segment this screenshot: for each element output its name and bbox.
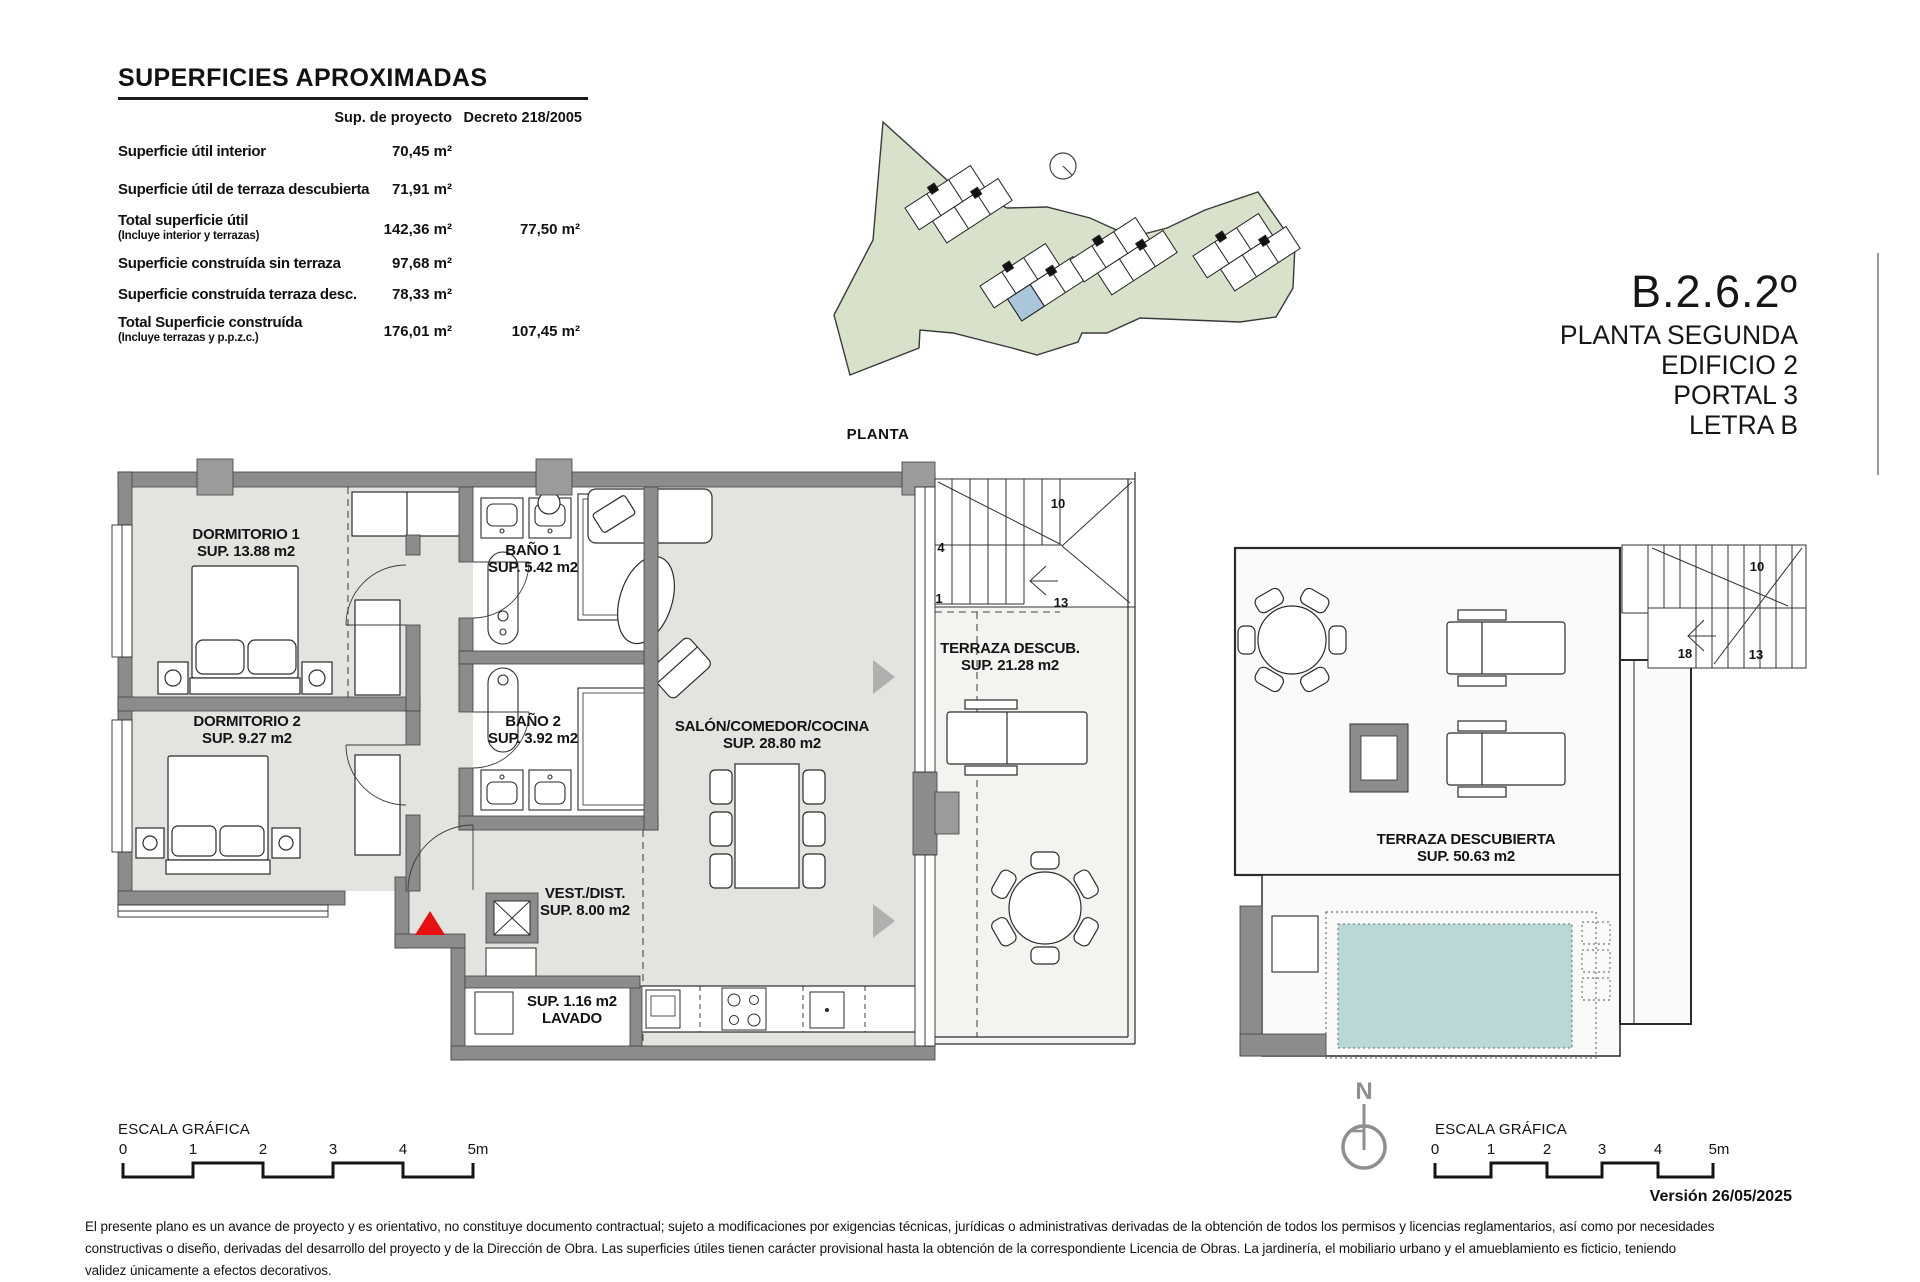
room-label-dormitorio1: DORMITORIO 1SUP. 13.88 m2	[192, 527, 299, 560]
unit-code: B.2.6.2º	[1560, 268, 1798, 316]
sheet-border-line	[1877, 253, 1879, 475]
room-label-vestibulo: VEST./DIST.SUP. 8.00 m2	[540, 886, 630, 919]
stair-number: 1	[935, 591, 942, 606]
stair-number: 4	[937, 540, 944, 555]
column-decreto: Decreto 218/2005	[464, 110, 583, 126]
disclaimer: El presente plano es un avance de proyec…	[85, 1216, 1847, 1282]
stair-number: 10	[1051, 496, 1065, 511]
room-label-dormitorio2: DORMITORIO 2SUP. 9.27 m2	[193, 714, 300, 747]
scale-tick: 3	[1598, 1141, 1606, 1158]
scale-bar-left-label: ESCALA GRÁFICA	[118, 1121, 250, 1138]
column-proyecto: Sup. de proyecto	[334, 110, 452, 126]
scale-tick: 1	[189, 1141, 197, 1158]
dining-table	[710, 764, 825, 888]
scale-tick: 2	[259, 1141, 267, 1158]
unit-floor: PLANTA SEGUNDA	[1560, 320, 1798, 350]
scale-bar-left-drawing	[123, 1163, 473, 1177]
scale-bar-right-drawing	[1435, 1163, 1713, 1177]
scale-tick: 3	[329, 1141, 337, 1158]
shaft	[486, 893, 538, 986]
stair-number: 13	[1749, 647, 1763, 662]
stair-number: 18	[1678, 646, 1692, 661]
solarium-slab	[1235, 548, 1620, 875]
unit-portal: PORTAL 3	[1560, 380, 1798, 410]
areas-table: SUPERFICIES APROXIMADAS Sup. de proyecto…	[118, 64, 588, 344]
scale-tick: 0	[1431, 1141, 1439, 1158]
scale-tick: 5m	[468, 1141, 489, 1158]
room-label-terraza: TERRAZA DESCUB.SUP. 21.28 m2	[940, 641, 1080, 674]
unit-id-block: B.2.6.2º PLANTA SEGUNDA EDIFICIO 2 PORTA…	[1560, 268, 1798, 440]
disclaimer-line: validez únicamente a efectos decorativos…	[85, 1260, 1847, 1282]
pool	[1338, 924, 1572, 1048]
terrace-stairs	[935, 479, 1135, 607]
disclaimer-line: El presente plano es un avance de proyec…	[85, 1216, 1847, 1238]
room-label-bano1: BAÑO 1SUP. 5.42 m2	[488, 543, 578, 576]
stair-number: 10	[1750, 559, 1764, 574]
table-row: Total superficie útil (Incluye interior …	[118, 212, 588, 242]
table-header: Sup. de proyecto Decreto 218/2005	[118, 110, 588, 128]
kitchen-counter	[640, 986, 921, 1032]
table-row: Superficie construída terraza desc. 78,3…	[118, 286, 588, 304]
scale-tick: 5m	[1709, 1141, 1730, 1158]
version-text: Versión 26/05/2025	[1650, 1188, 1792, 1206]
site-plan-drawing	[834, 122, 1300, 375]
room-label-salon: SALÓN/COMEDOR/COCINASUP. 28.80 m2	[675, 719, 869, 752]
scale-bar-right-label: ESCALA GRÁFICA	[1435, 1121, 1567, 1138]
room-label-bano2: BAÑO 2SUP. 3.92 m2	[488, 714, 578, 747]
table-row: Superficie útil interior 70,45 m²	[118, 143, 588, 161]
solarium-stairs	[1622, 545, 1806, 668]
floor-plan-sheet: { "colors": { "site_green": "#d8e1ca", "…	[0, 0, 1920, 1280]
scale-tick: 0	[119, 1141, 127, 1158]
north-label: N	[1355, 1078, 1372, 1106]
wardrobe-dorm1	[355, 600, 400, 695]
scale-tick: 1	[1487, 1141, 1495, 1158]
table-row: Total Superficie construída (Incluye ter…	[118, 314, 588, 344]
scale-tick: 4	[1654, 1141, 1662, 1158]
title-underline	[118, 97, 588, 100]
table-row: Superficie construída sin terraza 97,68 …	[118, 255, 588, 273]
stair-number: 13	[1054, 595, 1068, 610]
unit-letter: LETRA B	[1560, 410, 1798, 440]
north-arrow-icon	[1343, 1104, 1385, 1168]
solarium-wing	[1620, 660, 1691, 1024]
table-title: SUPERFICIES APROXIMADAS	[118, 64, 588, 93]
solarium-lounger	[1447, 721, 1565, 797]
room-label-terraza-solarium: TERRAZA DESCUBIERTASUP. 50.63 m2	[1377, 832, 1556, 865]
site-plan-caption: PLANTA	[847, 426, 910, 443]
scale-tick: 2	[1543, 1141, 1551, 1158]
room-label-lavado: SUP. 1.16 m2LAVADO	[527, 994, 617, 1027]
solarium-plan-drawing	[1235, 545, 1806, 1058]
solarium-lounger	[1447, 610, 1565, 686]
scale-tick: 4	[399, 1141, 407, 1158]
wardrobe-dorm2	[355, 755, 400, 855]
disclaimer-line: constructivas o diseño, derivadas del de…	[85, 1238, 1847, 1260]
table-row: Superficie útil de terraza descubierta 7…	[118, 181, 588, 199]
unit-building: EDIFICIO 2	[1560, 350, 1798, 380]
shade-structure	[1350, 724, 1408, 792]
washer	[475, 992, 513, 1034]
